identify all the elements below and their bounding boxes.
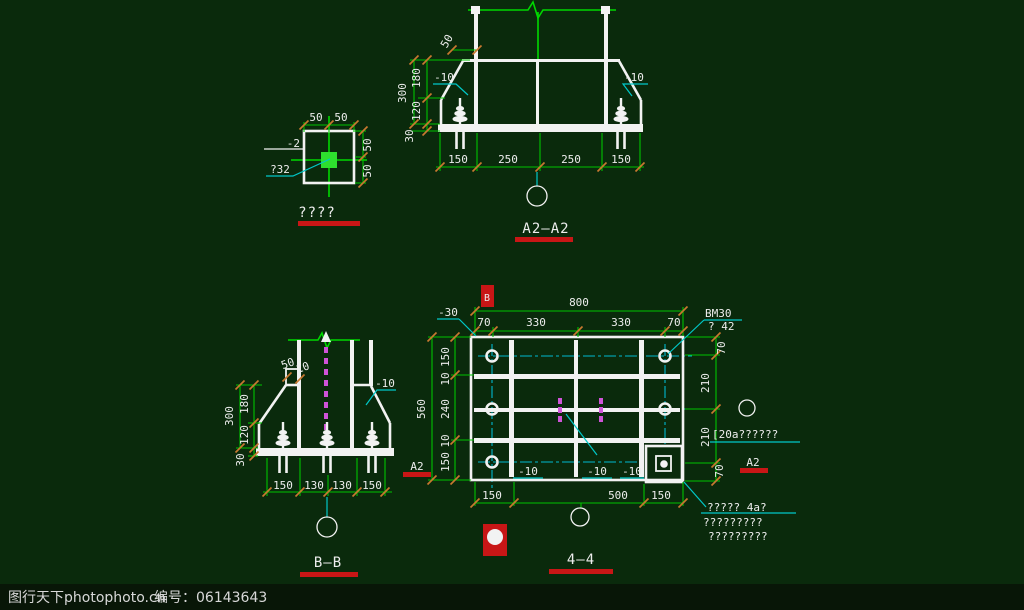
dim-label: 500 (608, 489, 628, 502)
dim-label: 130 (304, 479, 324, 492)
dim-label: 50 (309, 111, 322, 124)
title-underline (298, 221, 360, 226)
dim-label: 210 (699, 373, 712, 393)
dim-label: 560 (415, 399, 428, 419)
dim-label: 330 (611, 316, 631, 329)
dim-label: 300 (223, 406, 236, 426)
plate-thickness-label: -30 (438, 306, 458, 319)
dim-label: 30 (403, 129, 416, 142)
bolt-mark-label: BM30 (705, 307, 732, 320)
dim-label: 240 (439, 399, 452, 419)
plate-thickness-label: -10 (518, 465, 538, 478)
dim-label: 250 (561, 153, 581, 166)
dim-label: 150 (362, 479, 382, 492)
dim-label: 210 (699, 427, 712, 447)
cad-drawing-canvas: 150 250 250 150 300 180 120 30 50 -10 -1… (0, 0, 1024, 610)
dim-label: 70 (715, 341, 728, 354)
plate-thickness-label: -10 (375, 377, 395, 390)
bolt-dia-label: ? 42 (708, 320, 735, 333)
bolt-dia-label: ?32 (270, 163, 290, 176)
base-plate (256, 448, 394, 456)
dim-label: 50 (361, 138, 374, 151)
dim-label: 250 (498, 153, 518, 166)
plate-thickness-label: -10 (434, 71, 454, 84)
dim-label: 150 (273, 479, 293, 492)
dim-label: 130 (332, 479, 352, 492)
title-underline (300, 572, 358, 577)
dim-label: 150 (439, 347, 452, 367)
dim-label: 150 (439, 452, 452, 472)
dim-label: 120 (238, 425, 251, 445)
dim-label: 180 (410, 68, 423, 88)
dim-label: 330 (526, 316, 546, 329)
section-marker-b-bottom (483, 524, 507, 556)
dim-label: 120 (410, 101, 423, 121)
background (0, 0, 1024, 610)
dim-label: 300 (396, 83, 409, 103)
plate-label: -2 (287, 137, 300, 150)
watermark-serial: 编号：06143643 (154, 590, 267, 606)
section-title: A2—A2 (522, 221, 569, 237)
base-plate (438, 124, 643, 132)
svg-text:A2: A2 (746, 456, 759, 469)
plate-thickness-label: -10 (622, 465, 642, 478)
watermark-bar: 图行天下photophoto.cn 编号：06143643 (0, 584, 1024, 610)
dim-label: 150 (651, 489, 671, 502)
plate-thickness-label: -10 (624, 71, 644, 84)
dim-label: 150 (448, 153, 468, 166)
dim-label: 180 (238, 394, 251, 414)
dim-label: 70 (667, 316, 680, 329)
dim-label: 150 (482, 489, 502, 502)
detail-title: ???? (298, 205, 336, 221)
title-underline (549, 569, 613, 574)
svg-text:B: B (484, 293, 490, 304)
channel-note: [20a?????? (712, 428, 778, 441)
svg-text:A2: A2 (410, 460, 423, 473)
dim-label: 30 (234, 453, 247, 466)
watermark-site: 图行天下photophoto.cn (8, 590, 166, 606)
dim-label: 50 (361, 164, 374, 177)
dim-label: 10 (439, 372, 452, 385)
dim-label: 10 (439, 434, 452, 447)
dim-label: 800 (569, 296, 589, 309)
section-title: B—B (314, 555, 342, 571)
dim-label: 70 (713, 464, 726, 477)
plan-title: 4—4 (567, 552, 595, 568)
dim-label: 50 (334, 111, 347, 124)
note-line: ????? 4a? (707, 501, 767, 514)
dim-label: 150 (611, 153, 631, 166)
section-marker-b-top: B (481, 285, 494, 307)
dim-label: 70 (477, 316, 490, 329)
plate-thickness-label: -10 (587, 465, 607, 478)
cad-drawing: 150 250 250 150 300 180 120 30 50 -10 -1… (0, 0, 1024, 610)
title-underline (515, 237, 573, 242)
note-line: ????????? (703, 516, 763, 529)
note-line: ????????? (708, 530, 768, 543)
